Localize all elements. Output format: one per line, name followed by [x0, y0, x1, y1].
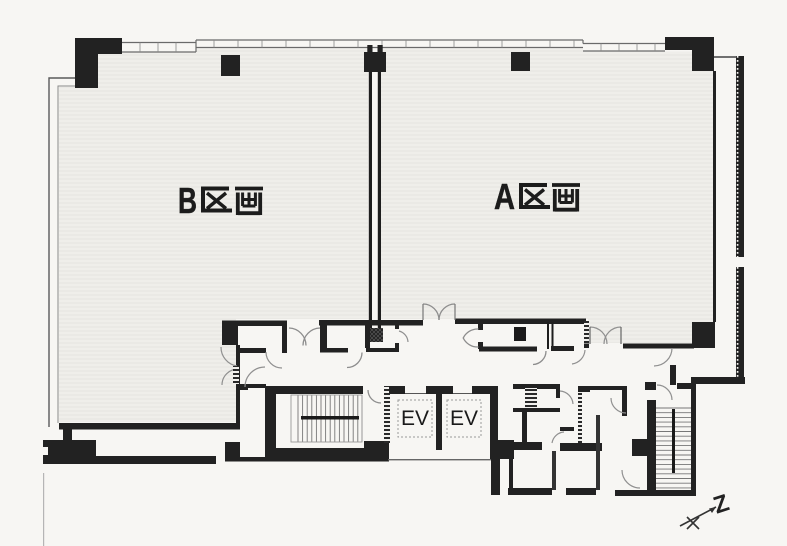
svg-text:EV: EV [401, 407, 429, 430]
svg-text:EV: EV [450, 407, 478, 430]
svg-text:A: A [494, 176, 515, 217]
svg-text:B: B [178, 180, 197, 221]
